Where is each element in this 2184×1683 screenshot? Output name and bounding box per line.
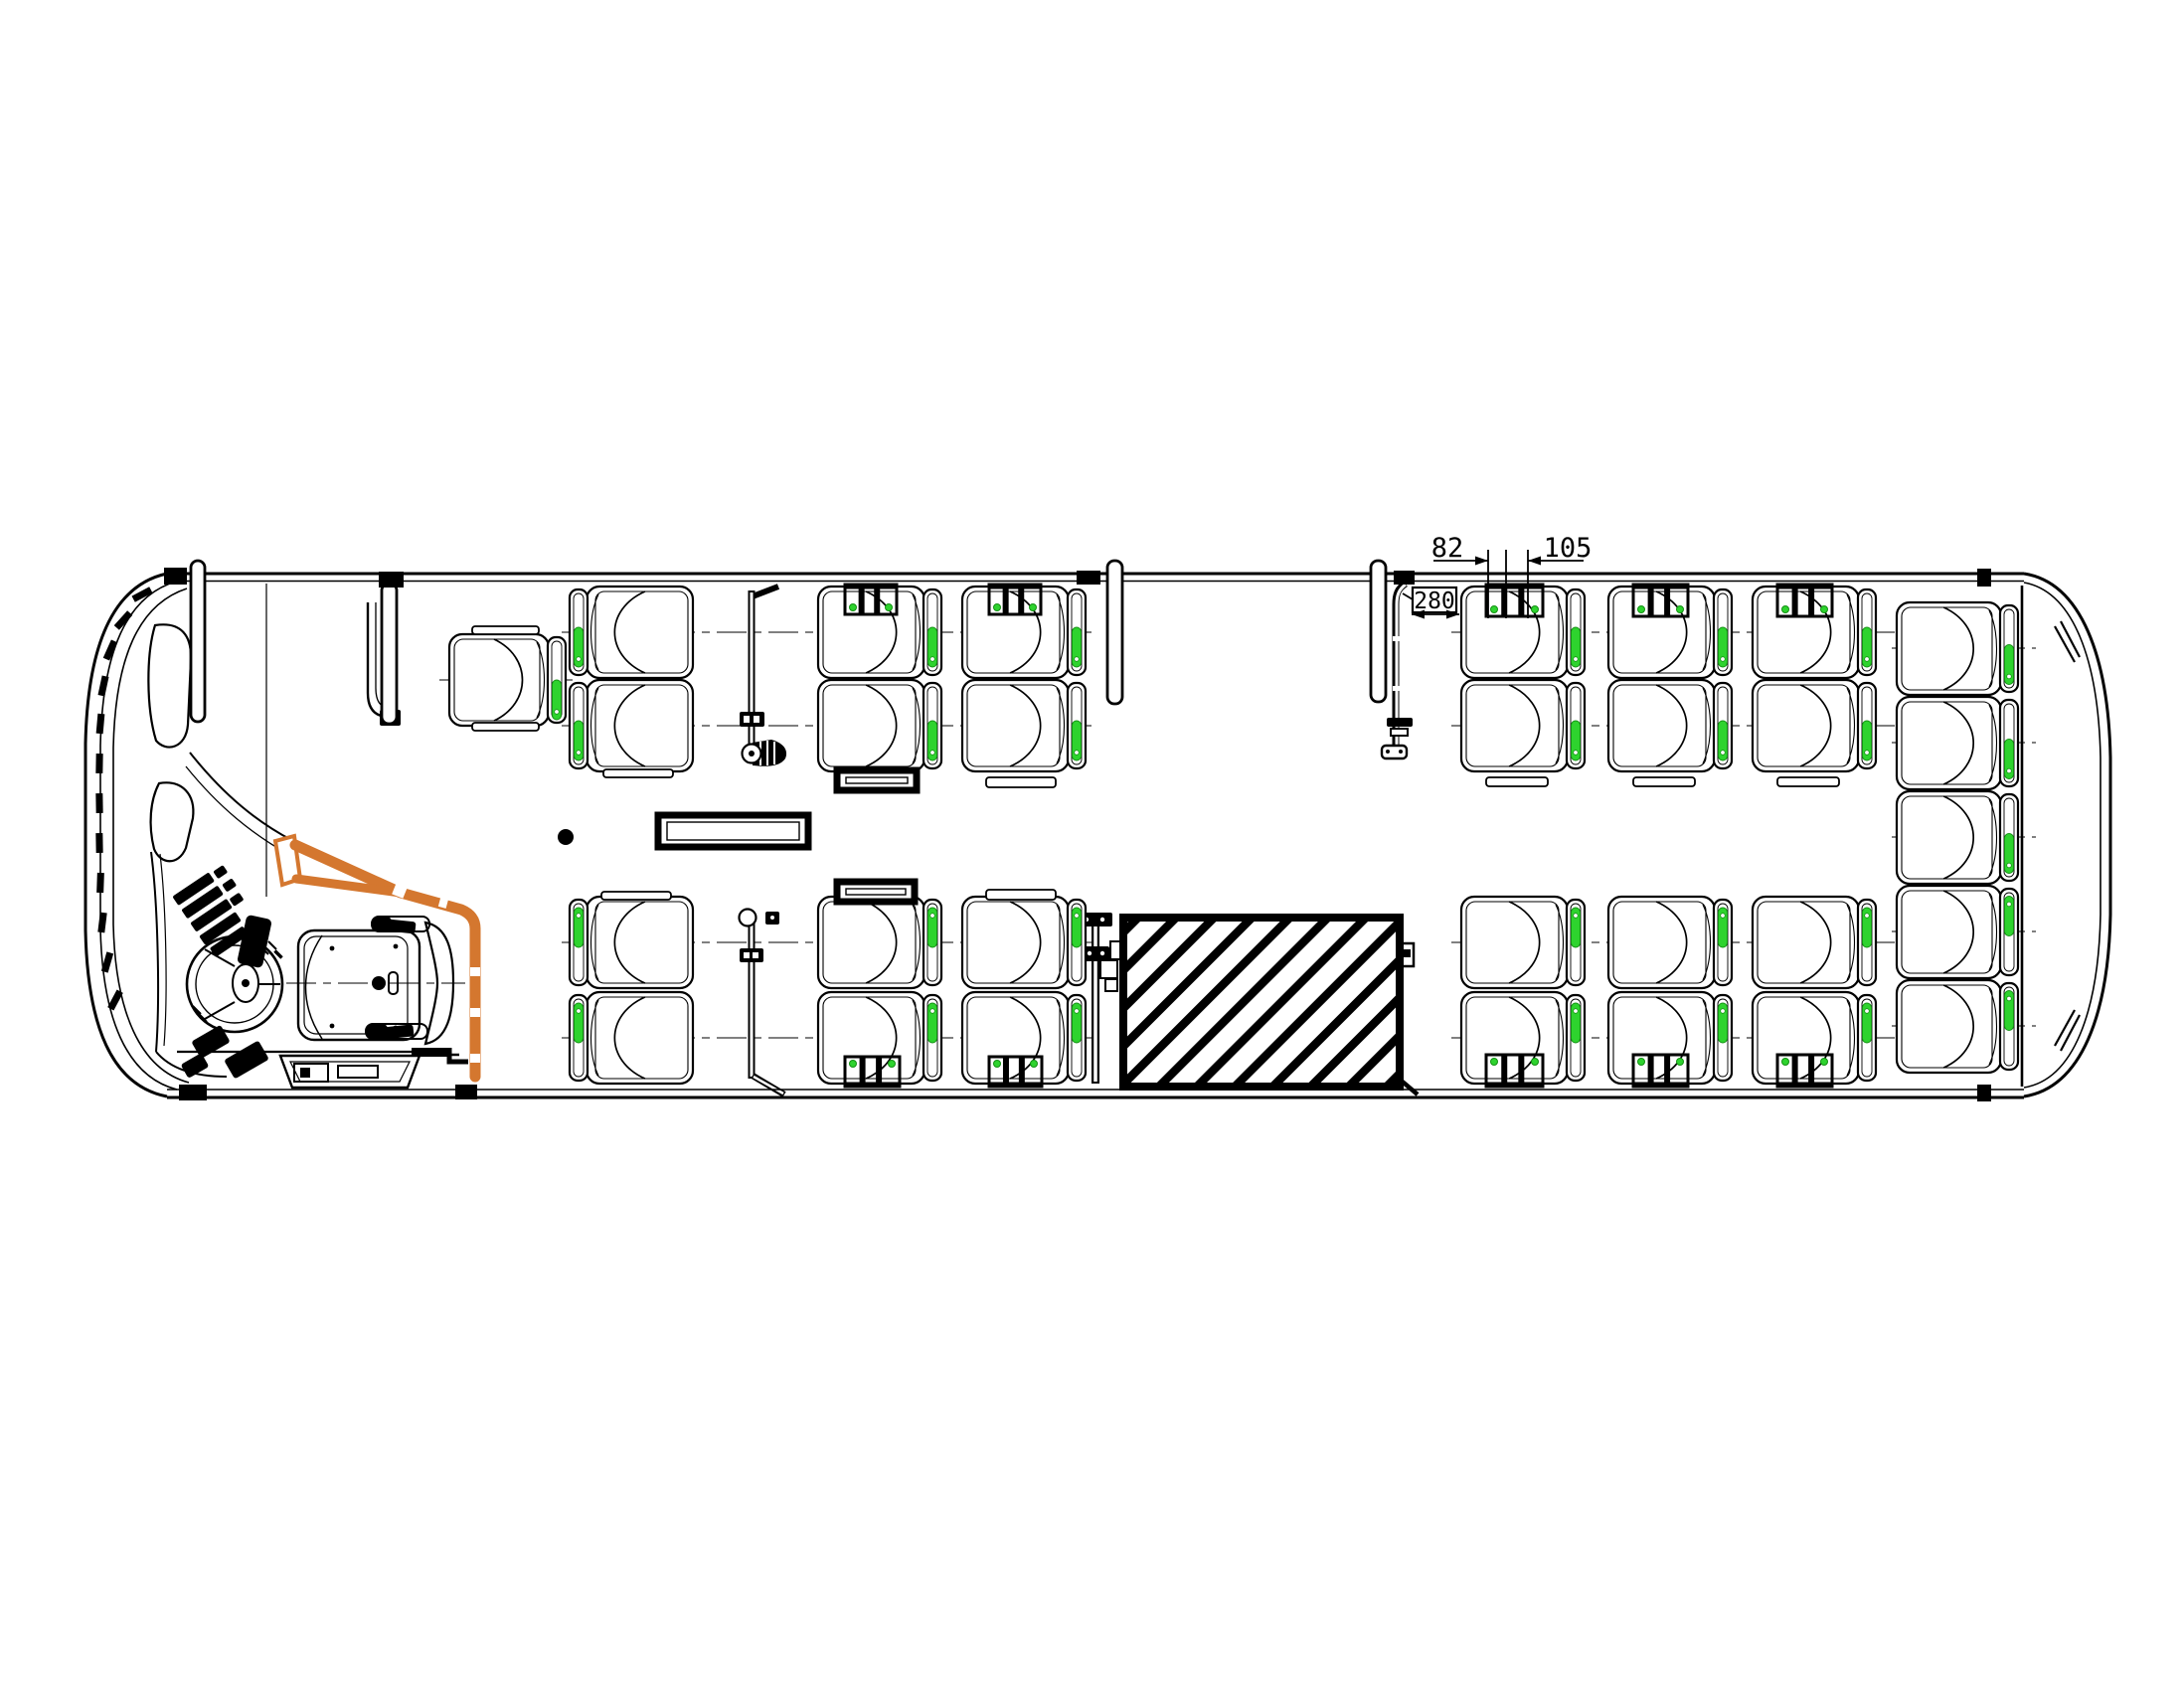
passenger-seat [1897,980,2018,1073]
dimension-label: 280 [1414,589,1455,614]
seat-cushion [1608,680,1715,771]
rear-corner-details [2055,621,2080,1051]
grab-handle-cap [1075,914,1080,919]
wall-pillar-mark [1394,571,1415,585]
seat-cushion [1897,886,2001,978]
passenger-seat [1753,680,1876,771]
dimension-line [1403,593,1413,599]
bracket-pin [1638,1059,1645,1066]
passenger-seat [1608,680,1732,771]
drawing-canvas: 82105280 [0,0,2184,1683]
grab-handle-cap [577,1009,582,1014]
bracket-pin [1782,1059,1789,1066]
under-seat-box [280,1056,420,1088]
dimension-280: 280 [1403,588,1459,619]
passenger-seat [570,992,693,1084]
dimension-arrowhead [1528,557,1541,566]
seat-cushion [962,680,1069,771]
wall-pillar-mark [1077,571,1100,585]
passenger-seat [1608,897,1732,988]
passenger-seat [1461,897,1585,988]
grab-handle-cap [1865,914,1870,919]
grab-handle-cap [1574,914,1579,919]
grab-handle-cap [930,657,935,662]
bus-floor-plan: 82105280 [0,0,2184,1683]
seat-cushion [1753,897,1859,988]
wall-pillar-mark [455,1085,477,1099]
passenger-seat [818,897,941,988]
seat-base-rail [986,777,1056,787]
passenger-seat [570,680,693,771]
seat-cushion [587,587,693,678]
passenger-seat [570,897,693,988]
seat-cushion [818,680,924,771]
instrument-cluster [237,915,272,968]
grab-handle-cap [1721,751,1726,756]
bracket-pin [850,1061,857,1068]
seat-cushion [1897,980,2001,1073]
seat-cushion [962,992,1069,1084]
bracket-pin [886,604,893,611]
grab-handle-cap [930,751,935,756]
passenger-seat [818,680,941,771]
bracket-pin [1677,606,1684,613]
grab-handle-cap [930,914,935,919]
grab-handle-cap [1865,1009,1870,1014]
seat-cushion [1897,602,2001,695]
grab-handle-cap [1721,657,1726,662]
grab-handle-cap [1574,751,1579,756]
wheelchair-area-hatch [1123,918,1400,1087]
grab-handle-cap [1075,751,1080,756]
floor-box [658,815,808,847]
seat-cushion [1897,697,2001,789]
windshield-pillar-ticks [95,587,152,1010]
passenger-seat [1897,602,2018,695]
seat-cushion [1461,680,1568,771]
bracket-pin [1532,606,1539,613]
bracket-pin [1638,606,1645,613]
aisle-stanchion-front [740,587,786,766]
grab-handle-cap [1865,657,1870,662]
seat-cushion [1461,587,1568,678]
grab-handle-cap [2007,996,2012,1001]
bus-rear-outline [2022,574,2110,1096]
passenger-seat [962,897,1086,988]
floor-box [837,882,915,902]
grab-handle-cap [555,710,560,715]
seat-cushion [1753,992,1859,1084]
seat-cushion [1753,587,1859,678]
bracket-pin [1532,1059,1539,1066]
seat-cushion [449,634,549,726]
steering-wheel [187,936,282,1032]
bracket-pin [1031,1061,1038,1068]
grab-handle-cap [2007,902,2012,907]
passenger-seat [1897,697,2018,789]
seat-cushion [1608,897,1715,988]
dimension-label: 82 [1431,533,1464,564]
grab-handle-cap [1574,1009,1579,1014]
seat-base-rail [601,892,671,900]
bus-front-outline [85,574,189,1096]
passenger-seat [1897,791,2018,884]
passenger-seat [962,680,1086,771]
door-grab-post [382,584,397,724]
bracket-pin [1030,604,1037,611]
seat-base-rail [986,890,1056,900]
cab-cutout-upper [148,624,191,747]
door-grab-post [191,561,205,722]
seat-cushion [962,587,1069,678]
seat-cushion [1461,897,1568,988]
seat-cushion [1608,992,1715,1084]
floor-reference-point [558,829,574,845]
grab-handle-cap [2007,674,2012,679]
bracket-pin [889,1061,896,1068]
seat-cushion [818,992,924,1084]
door-grab-post [1107,561,1122,704]
bracket-pin [994,1061,1001,1068]
grab-handle-cap [577,657,582,662]
aisle-stanchion-rear [740,910,785,1095]
seat-cushion [818,897,924,988]
bracket-pin [994,604,1001,611]
wall-pillar-mark [164,568,187,585]
seat-base-rail [472,723,539,731]
wall-pillar-mark [179,1085,207,1100]
grab-handle-cap [577,751,582,756]
seat-base-rail [472,626,539,634]
grab-handle-cap [1075,1009,1080,1014]
passenger-seat [449,634,566,726]
wall-pillar-mark [1977,569,1991,587]
dimension-label: 105 [1544,533,1593,564]
seat-cushion [1753,680,1859,771]
bracket-pin [1491,606,1498,613]
bracket-pin [1821,606,1828,613]
seat-cushion [962,897,1069,988]
passenger-seat [570,587,693,678]
seat-base-rail [1777,777,1839,786]
seat-cushion [587,897,693,988]
bracket-pin [1782,606,1789,613]
grab-handle-cap [577,914,582,919]
seat-cushion [1897,791,2001,884]
bracket-pin [1821,1059,1828,1066]
passenger-seat [1897,886,2018,978]
seat-cushion [818,587,924,678]
grab-handle-cap [1721,914,1726,919]
passenger-seat [1461,680,1585,771]
bracket-pin [1491,1059,1498,1066]
grab-handle-cap [2007,863,2012,868]
bracket-pin [850,604,857,611]
floor-box [837,770,917,790]
grab-handle-cap [1865,751,1870,756]
seat-cushion [1461,992,1568,1084]
seat-cushion [587,992,693,1084]
seat-base-rail [1486,777,1548,786]
seat-base-rail [603,769,673,777]
seat-base-rail [1633,777,1695,786]
wall-pillar-mark [379,572,404,588]
grab-handle-cap [1574,657,1579,662]
dimension-arrowhead [1475,557,1488,566]
driver-seat [298,917,453,1044]
door-grab-post [1371,561,1386,702]
seat-cushion [587,680,693,771]
grab-handle-cap [1075,657,1080,662]
cab-cutout-lower [151,782,194,861]
grab-handle-cap [930,1009,935,1014]
grab-handle-cap [2007,768,2012,773]
passenger-seat [1753,897,1876,988]
seat-cushion [1608,587,1715,678]
wall-pillar-mark [1977,1085,1991,1101]
grab-handle-cap [1721,1009,1726,1014]
bracket-pin [1677,1059,1684,1066]
